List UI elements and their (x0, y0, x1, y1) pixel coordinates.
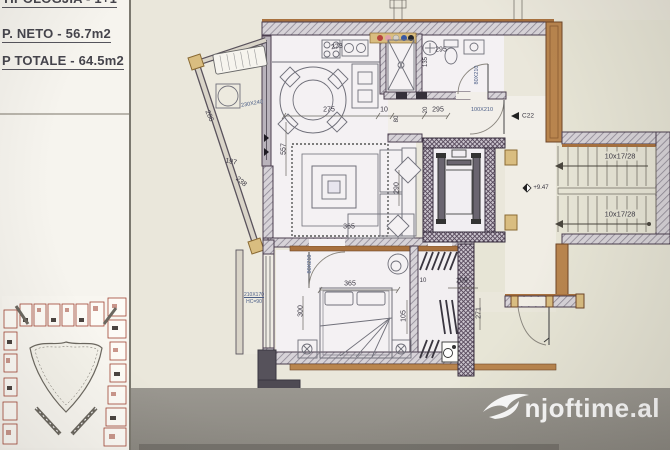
info-panel: TIPOLOGJIA - 1+1 P. NETO - 56.7m2 P TOTA… (0, 0, 129, 450)
floor-plan-drawing (130, 0, 670, 392)
net-area-label: P. NETO - 56.7m2 (2, 26, 111, 43)
total-area-label: P TOTALE - 64.5m2 (2, 53, 124, 70)
site-plan-thumbnail (2, 296, 128, 448)
watermark-text: njoftime.al (524, 393, 660, 424)
photo-background: njoftime.al (131, 388, 670, 450)
screenshot-root: 286230X24019723855727327510802029513580X… (0, 0, 670, 450)
shadow-strip (139, 444, 559, 450)
typology-title: TIPOLOGJIA - 1+1 (2, 0, 117, 8)
watermark: njoftime.al (481, 392, 660, 424)
divider (0, 113, 129, 115)
panel-border (129, 0, 131, 450)
